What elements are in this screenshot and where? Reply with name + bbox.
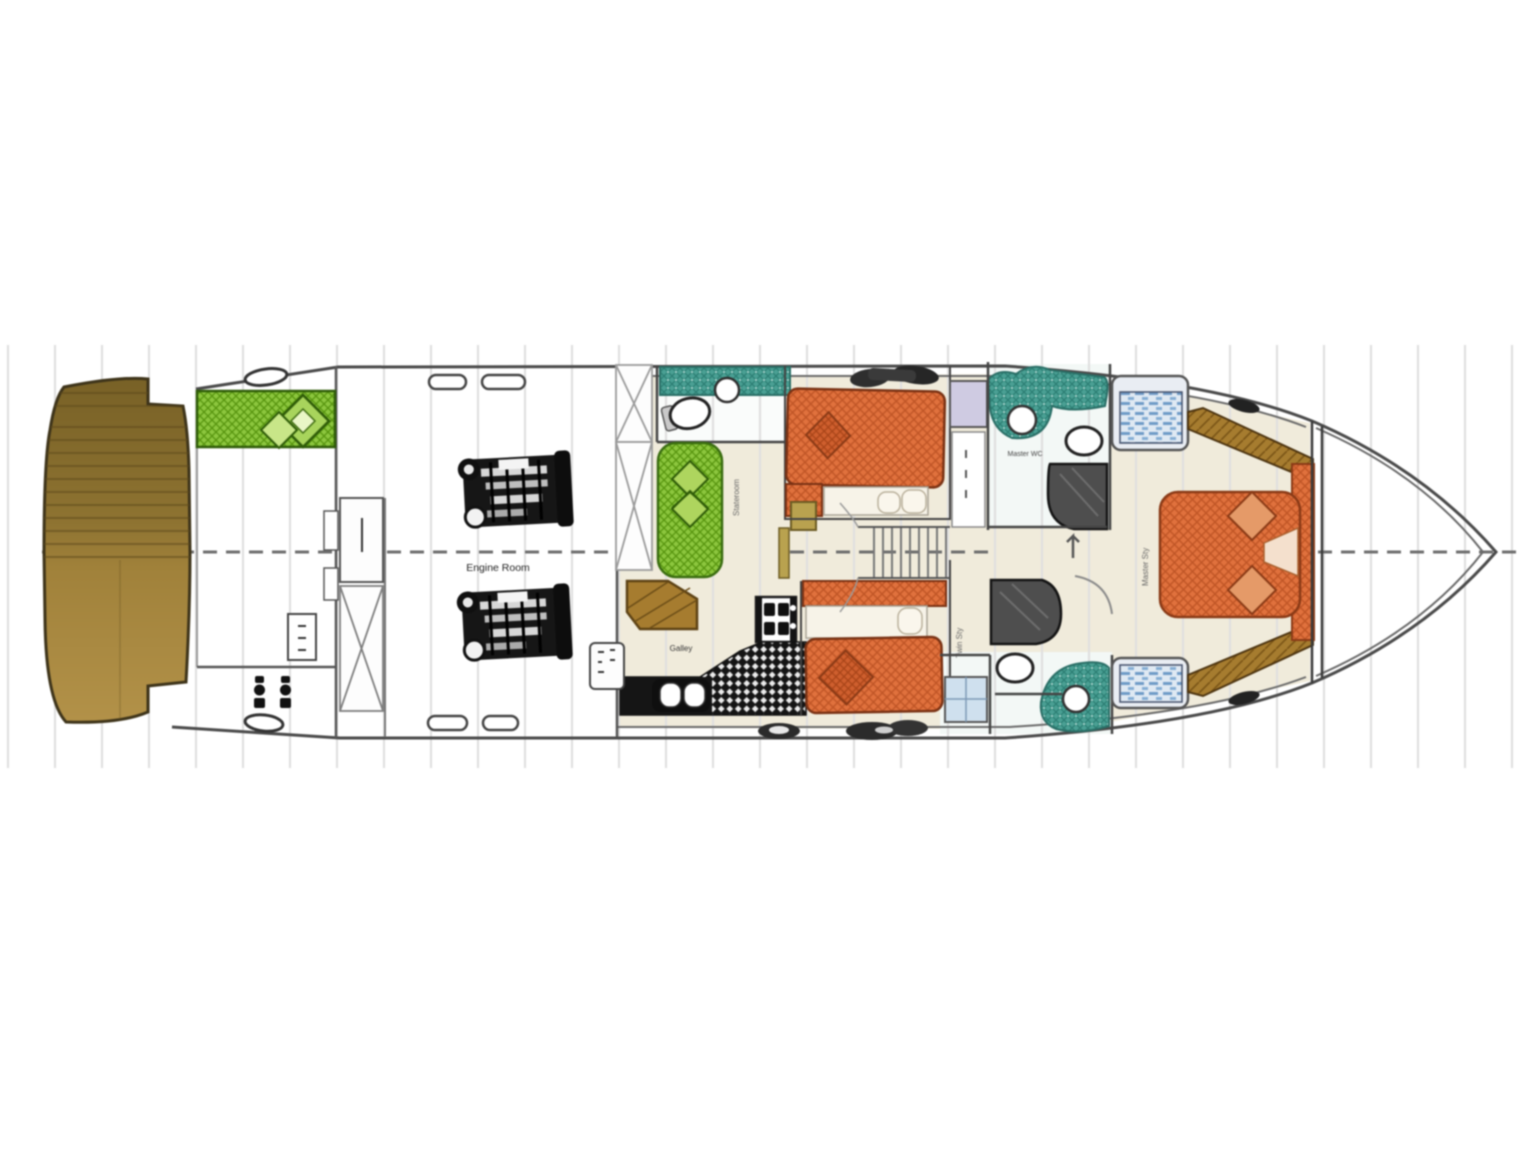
svg-text:Engine Room: Engine Room xyxy=(466,562,530,574)
svg-text:Master WC: Master WC xyxy=(1008,451,1043,458)
svg-text:Master Sty: Master Sty xyxy=(1141,548,1150,586)
svg-text:Stateroom: Stateroom xyxy=(732,479,741,516)
svg-text:Twin Sty: Twin Sty xyxy=(955,628,964,658)
svg-text:Galley: Galley xyxy=(670,644,693,653)
